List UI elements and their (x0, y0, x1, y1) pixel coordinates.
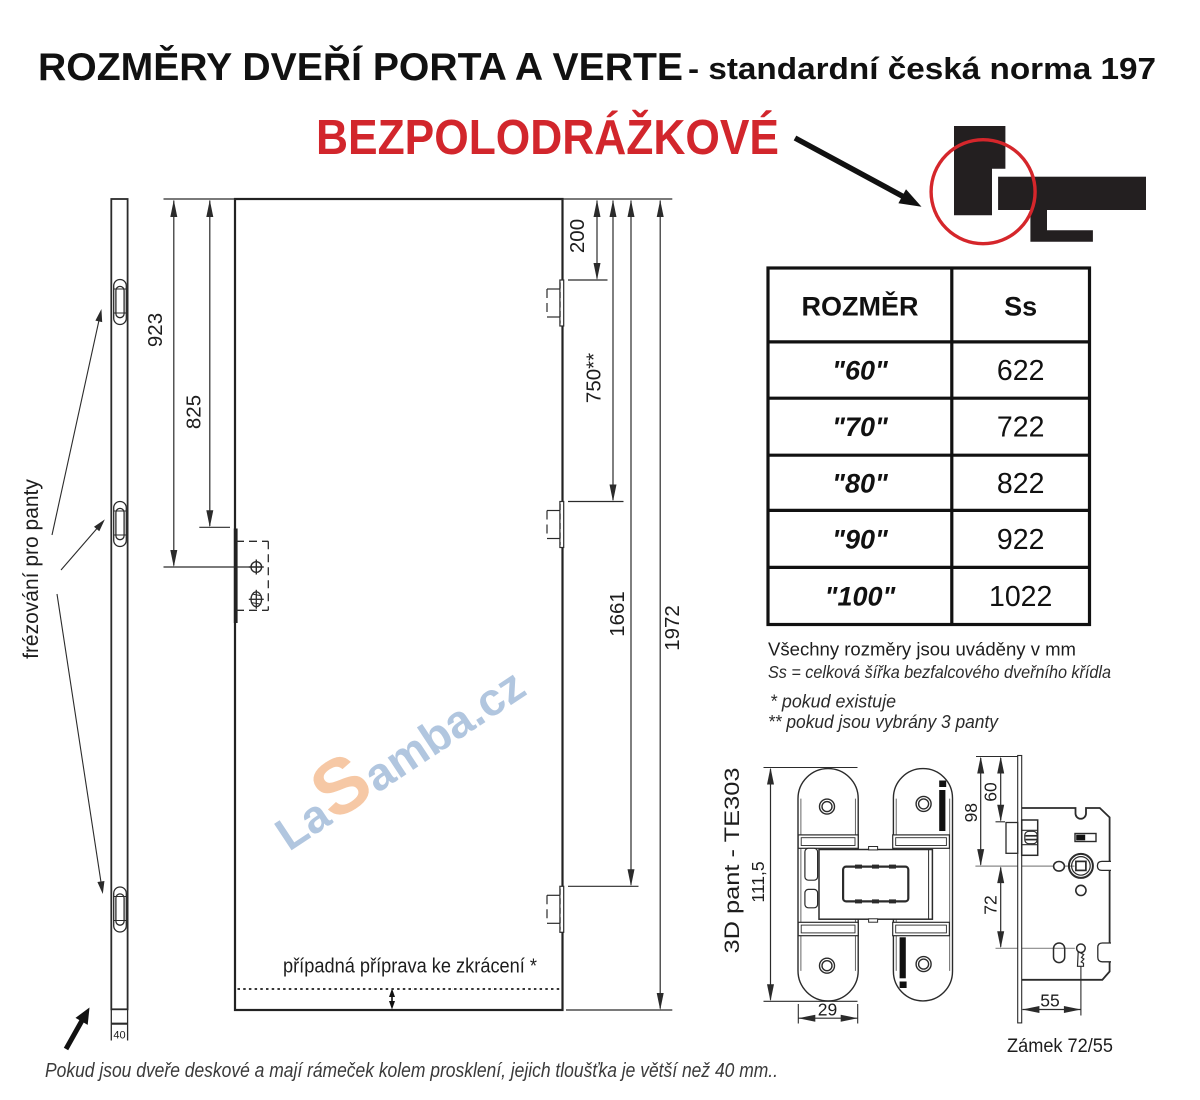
svg-text:750**: 750** (583, 353, 606, 403)
svg-text:- standardní česká norma 197: - standardní česká norma 197 (688, 51, 1156, 86)
svg-text:ROZMĚRY DVEŘÍ PORTA A VERTE: ROZMĚRY DVEŘÍ PORTA A VERTE (38, 45, 683, 89)
svg-text:"70": "70" (832, 412, 889, 442)
svg-text:60: 60 (981, 782, 1001, 802)
svg-text:** pokud jsou vybrány 3 panty: ** pokud jsou vybrány 3 panty (768, 712, 999, 732)
svg-text:Zámek 72/55: Zámek 72/55 (1007, 1036, 1113, 1057)
svg-text:Ss: Ss (1004, 292, 1037, 322)
svg-text:frézování pro panty: frézování pro panty (20, 479, 43, 659)
svg-text:923: 923 (144, 313, 167, 347)
svg-text:1661: 1661 (606, 591, 629, 637)
svg-text:1972: 1972 (661, 605, 684, 651)
svg-text:200: 200 (566, 219, 589, 253)
svg-text:29: 29 (818, 1000, 837, 1020)
svg-text:922: 922 (997, 524, 1045, 556)
svg-text:622: 622 (997, 355, 1045, 387)
svg-text:* pokud existuje: * pokud existuje (770, 692, 896, 712)
svg-text:822: 822 (997, 468, 1045, 500)
svg-text:1022: 1022 (989, 581, 1052, 613)
svg-text:"100": "100" (825, 582, 897, 612)
svg-text:"90": "90" (832, 525, 889, 555)
svg-text:3D pant - TE303: 3D pant - TE303 (721, 768, 744, 954)
svg-text:ROZMĚR: ROZMĚR (802, 291, 919, 322)
svg-text:111,5: 111,5 (748, 861, 768, 902)
svg-text:BEZPOLODRÁŽKOVÉ: BEZPOLODRÁŽKOVÉ (316, 110, 779, 165)
svg-text:"80": "80" (832, 469, 889, 499)
svg-text:Všechny rozměry jsou uváděny v: Všechny rozměry jsou uváděny v mm (768, 639, 1076, 659)
svg-text:98: 98 (961, 803, 981, 822)
svg-text:55: 55 (1040, 991, 1059, 1011)
svg-text:825: 825 (183, 395, 206, 429)
svg-text:Ss = celková šířka bezfalcovéh: Ss = celková šířka bezfalcového dveřního… (768, 662, 1111, 682)
svg-text:Pokud jsou dveře deskové a maj: Pokud jsou dveře deskové a mají rámeček … (45, 1059, 778, 1082)
svg-text:případná příprava ke zkrácení: případná příprava ke zkrácení * (283, 955, 537, 978)
svg-text:722: 722 (997, 412, 1045, 444)
svg-text:72: 72 (981, 895, 1001, 914)
svg-text:"60": "60" (832, 356, 889, 386)
svg-text:40: 40 (113, 1030, 125, 1042)
